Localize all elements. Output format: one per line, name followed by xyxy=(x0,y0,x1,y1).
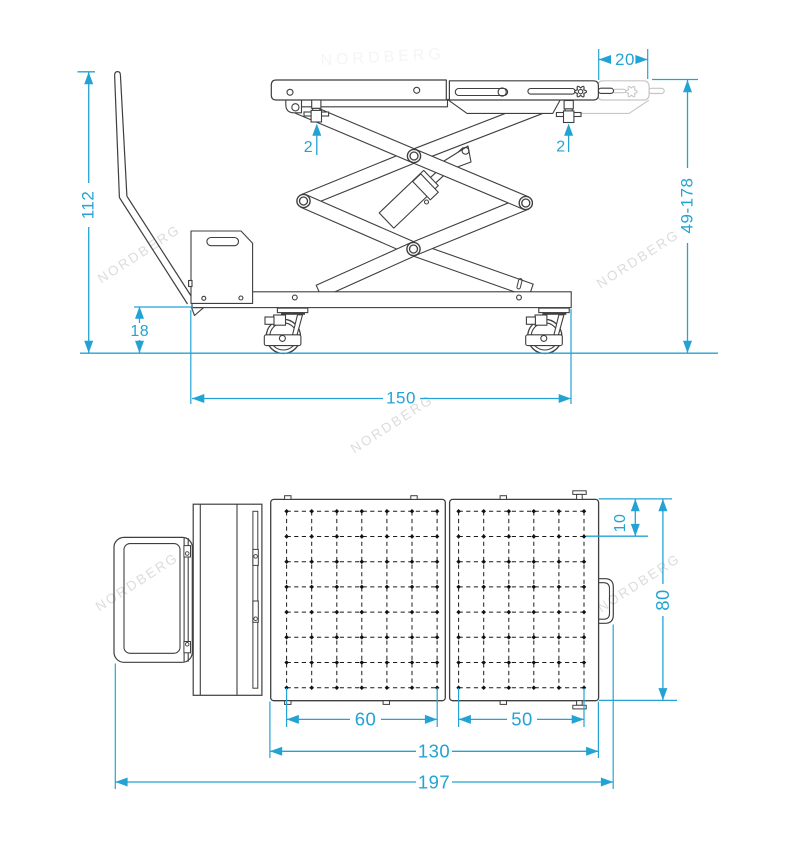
svg-text:18: 18 xyxy=(130,323,149,340)
svg-text:130: 130 xyxy=(418,741,450,762)
svg-text:80: 80 xyxy=(652,589,673,611)
svg-text:60: 60 xyxy=(355,709,377,730)
svg-text:49-178: 49-178 xyxy=(678,178,697,234)
svg-text:10: 10 xyxy=(612,514,629,533)
svg-text:NORDBERG: NORDBERG xyxy=(93,550,181,615)
svg-text:2: 2 xyxy=(304,139,313,156)
svg-text:2: 2 xyxy=(556,139,565,156)
svg-text:150: 150 xyxy=(386,389,416,408)
svg-text:NORDBERG: NORDBERG xyxy=(320,46,445,69)
svg-text:112: 112 xyxy=(79,191,98,220)
svg-text:197: 197 xyxy=(418,771,450,792)
svg-text:NORDBERG: NORDBERG xyxy=(594,227,682,292)
svg-text:20: 20 xyxy=(615,50,635,69)
svg-text:50: 50 xyxy=(511,709,533,730)
